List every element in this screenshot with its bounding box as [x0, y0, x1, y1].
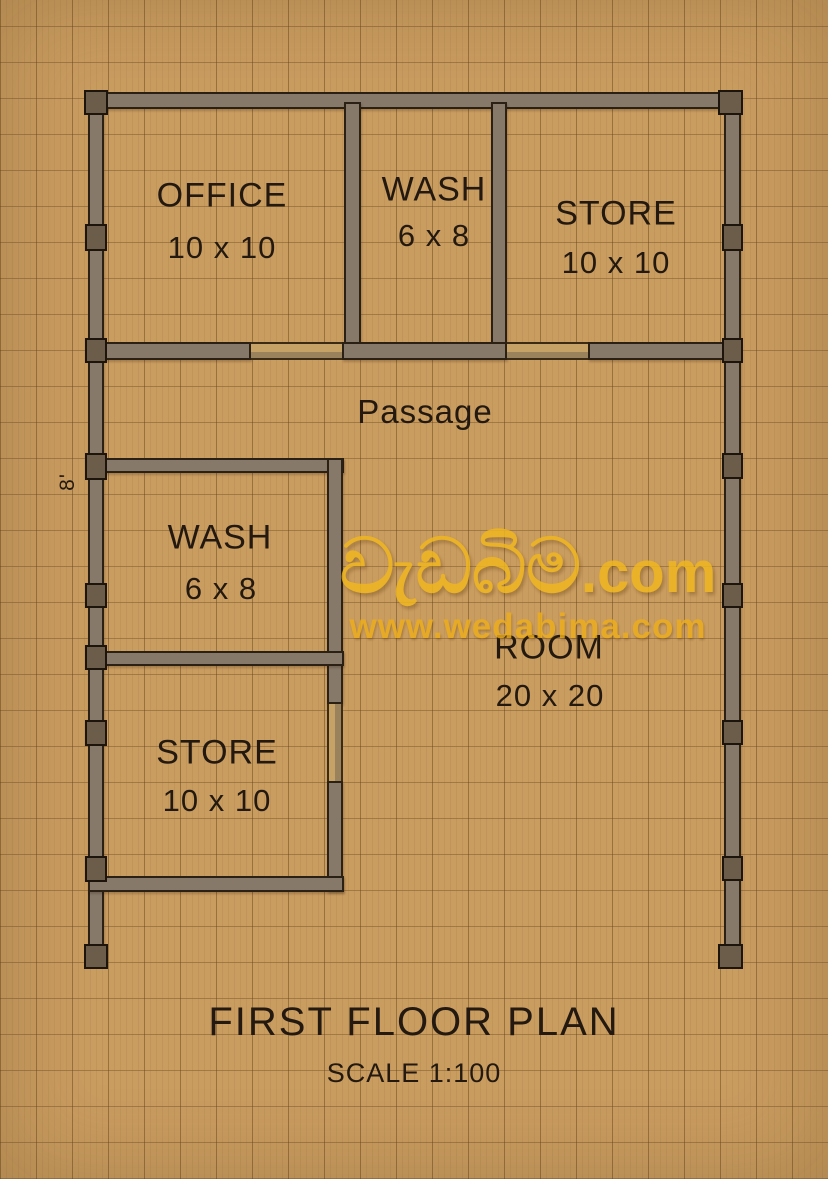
wall-outer-right: [724, 92, 741, 948]
column-top-left: [84, 90, 108, 115]
room-label-store-top: STORE: [555, 195, 677, 234]
column-bottom-right: [718, 944, 743, 969]
room-dims-store-bottom: 10 x 10: [163, 783, 272, 819]
room-label-wash-top: WASH: [382, 171, 487, 210]
room-dims-office: 10 x 10: [168, 230, 277, 266]
column-left-3: [85, 453, 107, 480]
column-left-6: [85, 720, 107, 746]
store-top-door-opening: [507, 342, 588, 360]
room-dims-store-top: 10 x 10: [562, 245, 671, 281]
side-dimension-label: 8': [56, 473, 80, 491]
room-dims-room: 20 x 20: [496, 678, 605, 714]
column-left-7: [85, 856, 107, 882]
wall-store-bottom: [88, 876, 344, 892]
room-label-passage: Passage: [357, 393, 492, 431]
store-bottom-door-opening: [327, 704, 343, 781]
room-dims-wash-top: 6 x 8: [398, 218, 470, 254]
wall-passage-middle: [342, 342, 507, 360]
floor-plan-canvas: OFFICE 10 x 10 WASH 6 x 8 STORE 10 x 10 …: [0, 0, 828, 1179]
column-right-2: [722, 338, 743, 363]
watermark-brand-suffix: .com: [581, 540, 716, 605]
wall-outer-top: [88, 92, 740, 109]
column-left-2: [85, 338, 107, 363]
column-right-6: [722, 856, 743, 881]
title-block: FIRST FLOOR PLAN SCALE 1:100: [0, 1000, 828, 1089]
room-dims-wash-middle: 6 x 8: [185, 571, 257, 607]
wall-wash-store-divider-middle: [88, 651, 344, 666]
column-right-4: [722, 583, 743, 608]
column-left-4: [85, 583, 107, 608]
office-door-opening: [251, 342, 342, 360]
room-label-room: ROOM: [494, 629, 604, 668]
wall-office-wash-divider: [344, 102, 361, 344]
plan-scale: SCALE 1:100: [0, 1058, 828, 1089]
plan-title: FIRST FLOOR PLAN: [0, 1000, 828, 1045]
column-right-3: [722, 453, 743, 479]
room-label-wash-middle: WASH: [168, 519, 273, 558]
watermark-brand-line: වැඩබිම.com: [340, 529, 717, 605]
column-right-5: [722, 720, 743, 745]
watermark-brand-text: වැඩබිම: [340, 524, 581, 609]
column-left-1: [85, 224, 107, 251]
wall-wash-store-divider: [491, 102, 507, 344]
room-label-store-bottom: STORE: [156, 734, 278, 773]
wall-passage-right: [588, 342, 741, 360]
wall-passage-left: [88, 342, 251, 360]
column-right-1: [722, 224, 743, 251]
column-bottom-left: [84, 944, 108, 969]
wall-wash-store-right-upper: [327, 458, 343, 704]
column-top-right: [718, 90, 743, 115]
wall-outer-left: [88, 92, 104, 948]
wall-wash-middle-top: [88, 458, 344, 473]
room-label-office: OFFICE: [157, 177, 288, 216]
column-left-5: [85, 645, 107, 670]
